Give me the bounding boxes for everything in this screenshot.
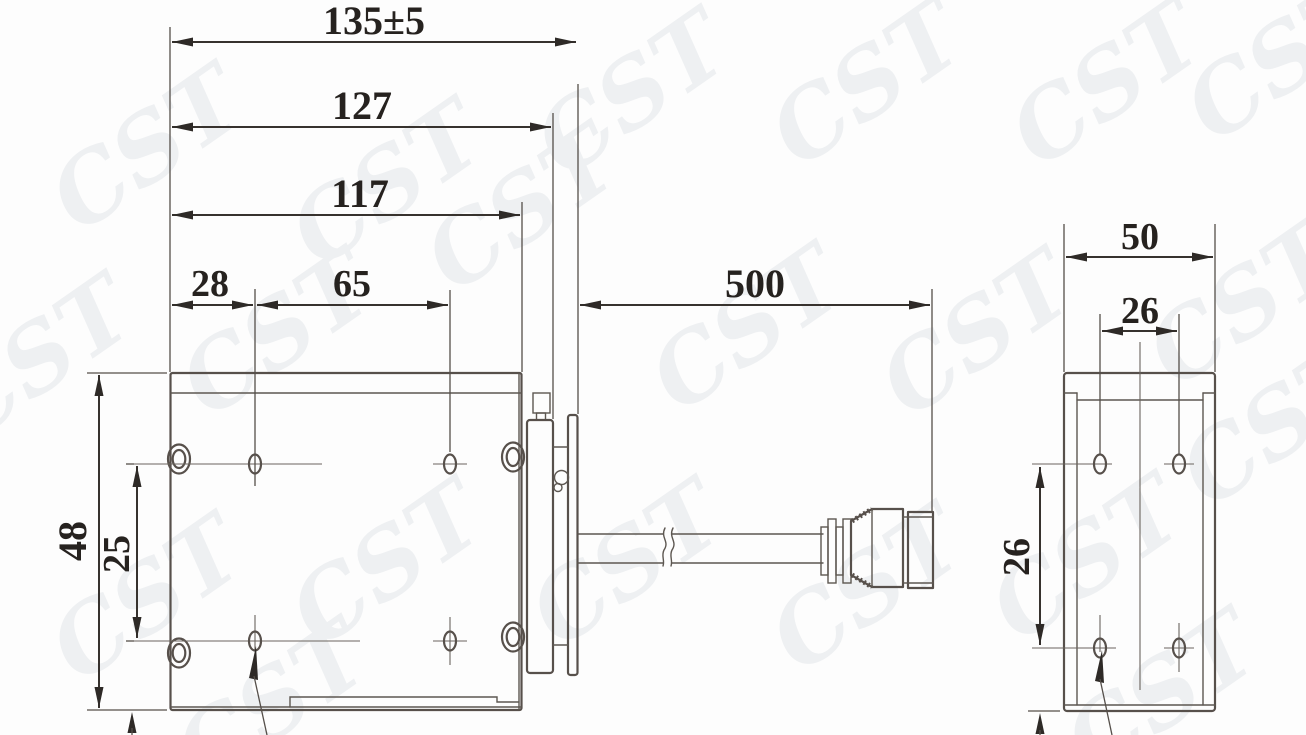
dim-label-side-hole-pitch-y: 26 [996,538,1038,576]
watermark-text: CST [30,41,268,253]
watermark-layer: CST CST CST CST CST CST CST CST CST CST … [0,0,1306,735]
dim-label-side-hole-pitch-x: 26 [1121,290,1159,332]
dim-label-first-hole-offset: 28 [191,263,229,305]
dim-overall-length: 135±5 [172,0,576,47]
dim-label-overall-length: 135±5 [323,0,425,43]
dim-cutoff-bottom-front [128,712,137,735]
dim-label-side-width: 50 [1121,216,1159,258]
watermark-text: CST [750,0,988,188]
top-tab [533,393,550,420]
dim-side-width: 50 [1066,216,1213,262]
dim-label-hole-pitch-x: 65 [333,263,371,305]
dim-label-cable-length: 500 [725,261,785,306]
watermark-text: CST [860,226,1098,438]
dim-first-hole-offset: 28 [172,263,253,310]
technical-drawing: CST CST CST CST CST CST CST CST CST CST … [0,0,1306,735]
dim-label-body-height: 48 [50,521,95,561]
watermark-text: CST [0,251,158,463]
watermark-text: CST [510,456,748,668]
watermark-text: CST [630,221,868,433]
dim-label-hole-pitch-y: 25 [96,535,138,573]
dim-cable-length: 500 [580,261,930,310]
dim-label-body-length: 117 [331,171,389,216]
dim-label-length-to-bracket: 127 [332,83,392,128]
dim-cutoff-bottom-side [1036,713,1045,735]
technical-drawing-canvas: CST CST CST CST CST CST CST CST CST CST … [0,0,1306,735]
